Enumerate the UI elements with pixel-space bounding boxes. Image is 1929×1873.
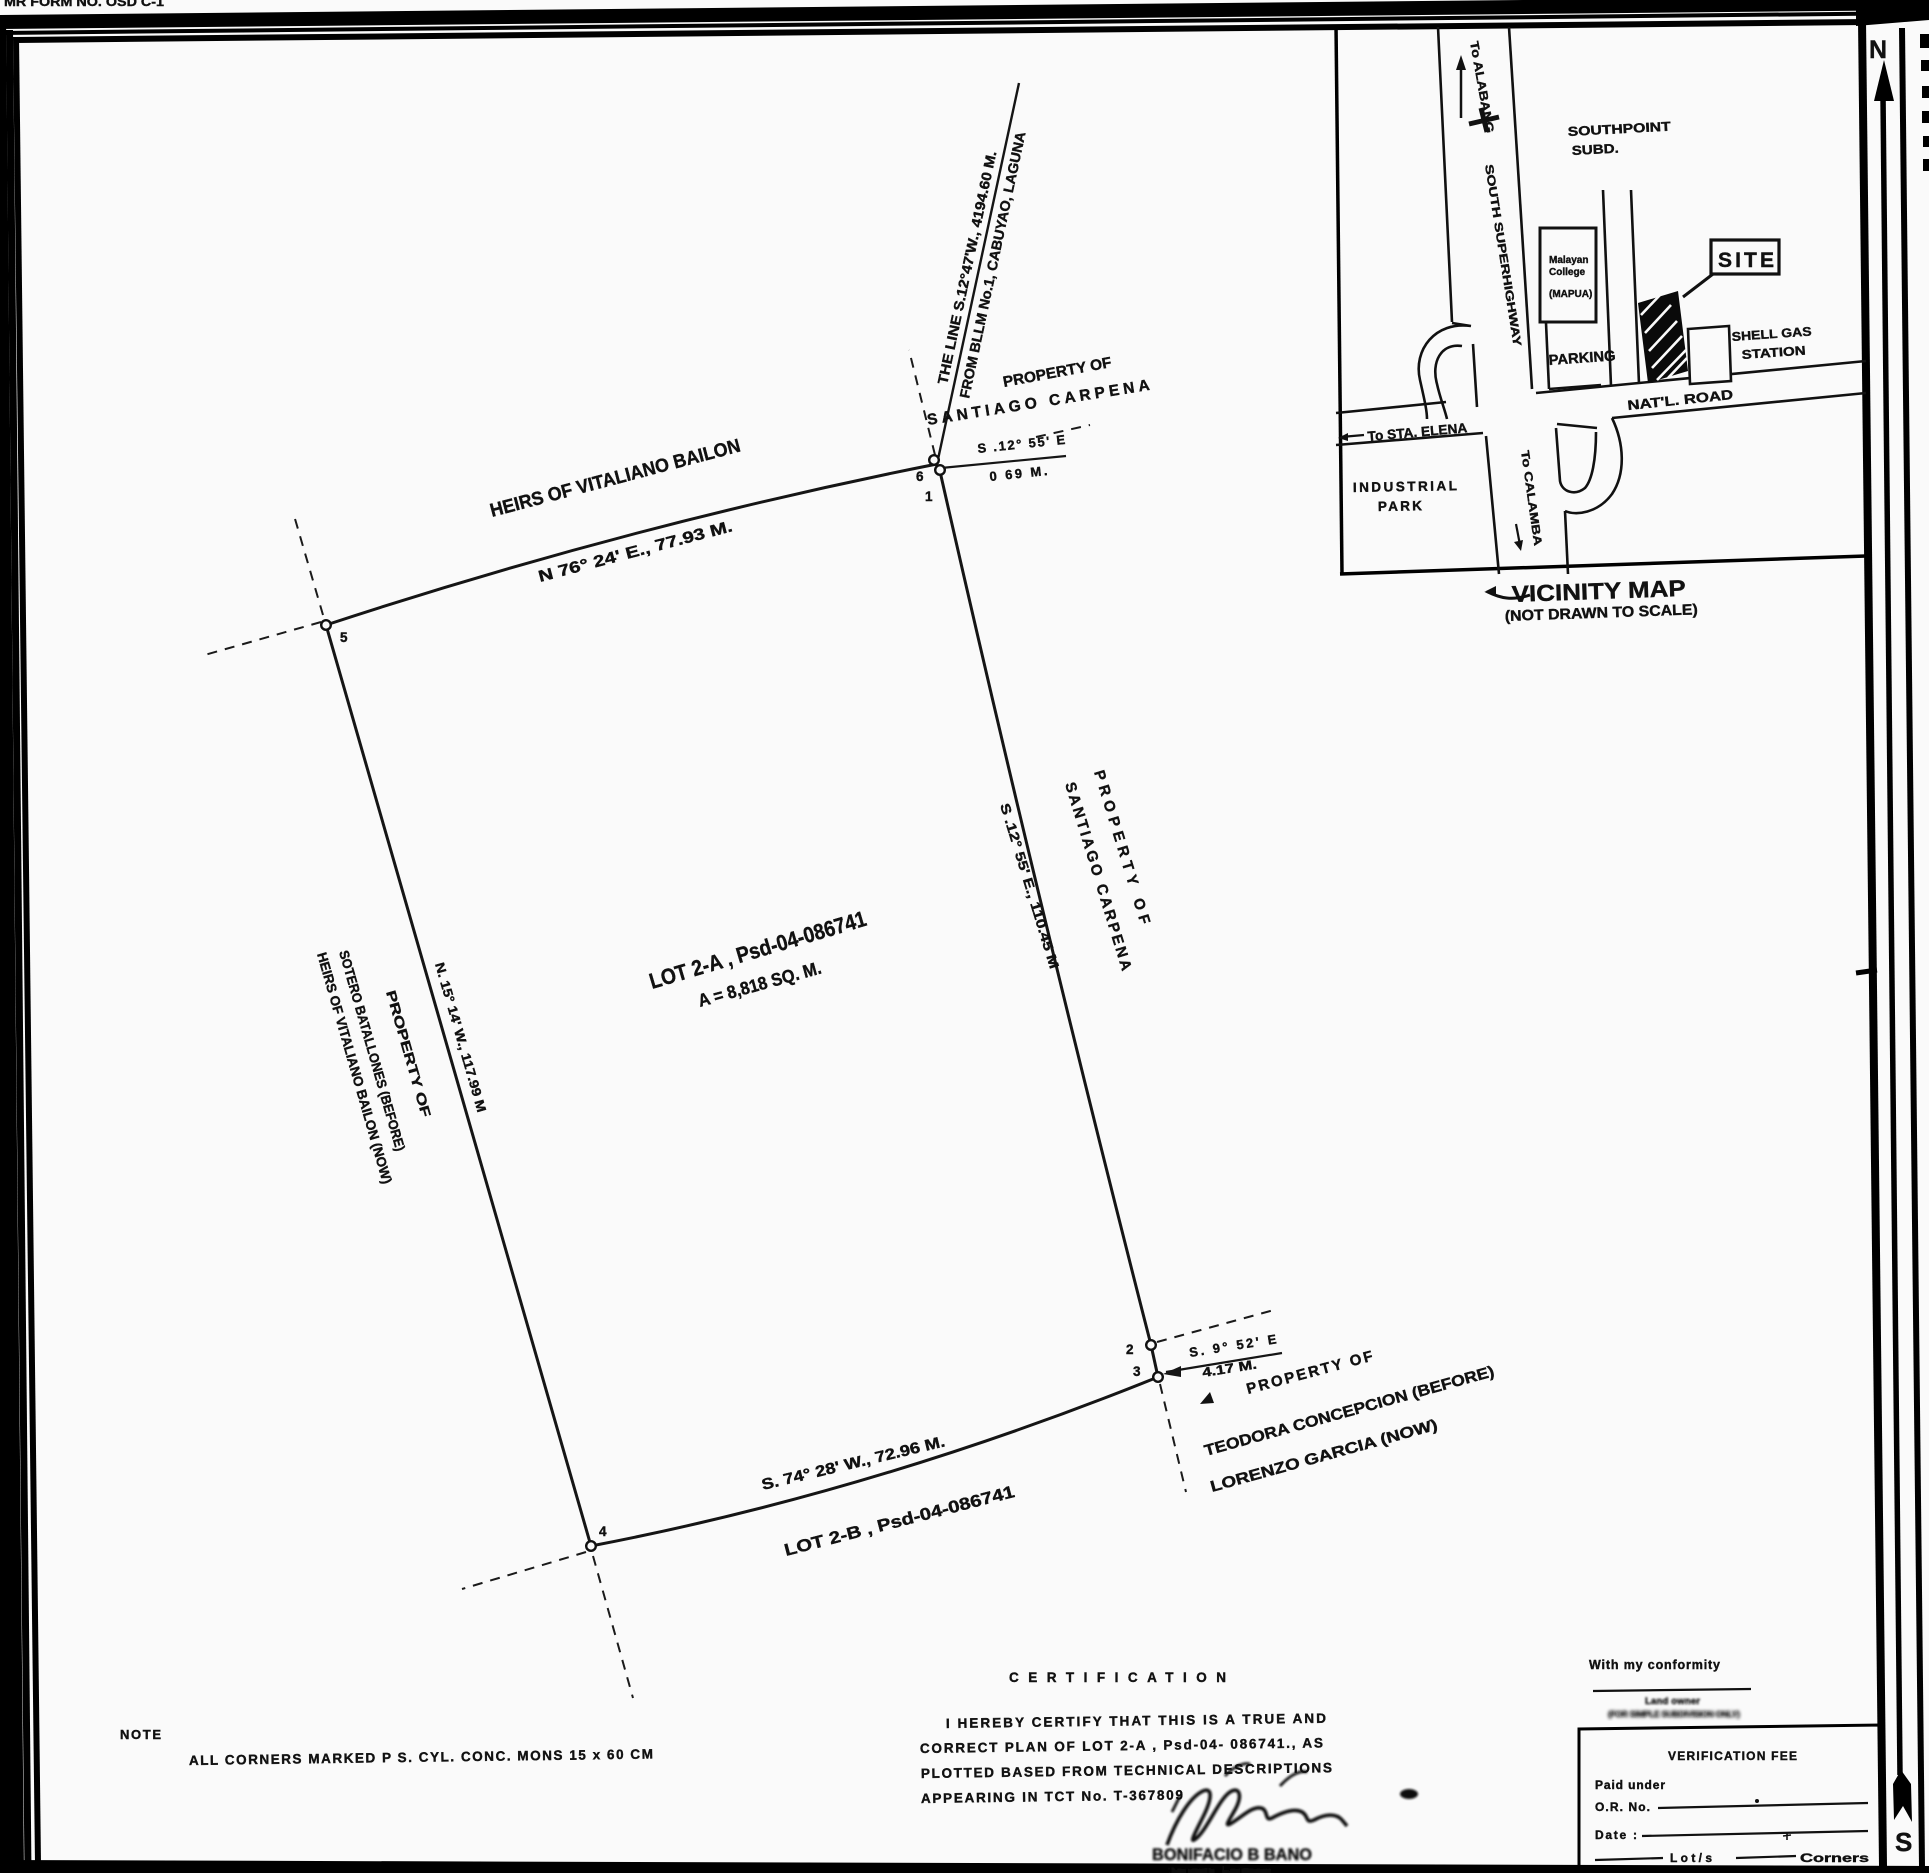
svg-text:MR FORM NO. OSD C-1: MR FORM NO. OSD C-1 — [4, 0, 164, 9]
svg-text:0 69 M.: 0 69 M. — [989, 463, 1048, 484]
svg-text:Date :: Date : — [1595, 1828, 1637, 1842]
svg-text:3: 3 — [1133, 1364, 1141, 1379]
svg-text:S .12° 55' E: S .12° 55' E — [977, 432, 1066, 456]
svg-text:6: 6 — [916, 469, 924, 484]
svg-text:HEIRS OF VITALIANO BAILON: HEIRS OF VITALIANO BAILON — [488, 436, 743, 522]
svg-text:4.17 M.: 4.17 M. — [1201, 1357, 1258, 1380]
svg-text:BONIFACIO B BANO: BONIFACIO B BANO — [1152, 1846, 1312, 1864]
svg-text:NOTE: NOTE — [120, 1727, 161, 1742]
svg-text:5: 5 — [340, 630, 348, 645]
svg-text:VERIFICATION FEE: VERIFICATION FEE — [1668, 1749, 1797, 1763]
svg-text:4: 4 — [599, 1524, 607, 1539]
svg-text:1: 1 — [925, 489, 933, 504]
svg-text:Geodetic Engineer: Geodetic Engineer — [1167, 1864, 1273, 1873]
svg-text:(MAPUA): (MAPUA) — [1549, 289, 1592, 300]
svg-text:PARK: PARK — [1378, 498, 1423, 514]
svg-text:Lot/s: Lot/s — [1670, 1851, 1712, 1865]
svg-text:SOUTH SUPERHIGHWAY: SOUTH SUPERHIGHWAY — [1482, 164, 1523, 348]
svg-text:2: 2 — [1126, 1342, 1134, 1357]
svg-text:PLOTTED BASED FROM TECHNICAL D: PLOTTED BASED FROM TECHNICAL DESCRIPTION… — [921, 1760, 1332, 1781]
svg-text:SOUTHPOINT: SOUTHPOINT — [1567, 119, 1671, 139]
svg-text:SITE: SITE — [1718, 249, 1774, 272]
svg-text:O.R. No.: O.R. No. — [1595, 1800, 1650, 1814]
svg-text:(FOR SIMPLE SUBDIVISION ONLY): (FOR SIMPLE SUBDIVISION ONLY) — [1608, 1709, 1740, 1719]
svg-text:Malayan: Malayan — [1549, 255, 1588, 266]
svg-text:College: College — [1549, 267, 1586, 278]
svg-text:To CALAMBA: To CALAMBA — [1518, 450, 1543, 547]
svg-text:S .12° 55' E., 110.45 M: S .12° 55' E., 110.45 M — [997, 801, 1062, 970]
svg-text:NAT'L. ROAD: NAT'L. ROAD — [1627, 387, 1734, 413]
svg-text:PARKING: PARKING — [1548, 348, 1616, 369]
svg-text:With my conformity: With my conformity — [1589, 1658, 1720, 1672]
svg-text:S: S — [1895, 1827, 1912, 1857]
svg-text:N: N — [1869, 36, 1887, 64]
svg-text:APPEARING IN TCT No. T-367809: APPEARING IN TCT No. T-367809 — [921, 1787, 1183, 1806]
svg-text:To STA. ELENA: To STA. ELENA — [1367, 420, 1468, 444]
svg-text:I HEREBY CERTIFY THAT THIS IS: I HEREBY CERTIFY THAT THIS IS A TRUE AND — [946, 1711, 1326, 1731]
svg-text:CERTIFICATION: CERTIFICATION — [1009, 1670, 1226, 1685]
svg-text:SHELL GAS: SHELL GAS — [1731, 324, 1812, 344]
svg-text:Land owner: Land owner — [1645, 1696, 1700, 1707]
svg-text:Paid under: Paid under — [1595, 1778, 1665, 1792]
svg-text:INDUSTRIAL: INDUSTRIAL — [1353, 478, 1457, 495]
svg-text:LORENZO GARCIA (NOW): LORENZO GARCIA (NOW) — [1209, 1417, 1440, 1496]
svg-text:CORRECT PLAN OF LOT 2-A , Psd-: CORRECT PLAN OF LOT 2-A , Psd-04- 086741… — [920, 1735, 1323, 1756]
svg-text:To ALABANG: To ALABANG — [1467, 40, 1497, 134]
svg-text:STATION: STATION — [1741, 344, 1806, 362]
svg-text:ALL CORNERS MARKED P S. CYL. C: ALL CORNERS MARKED P S. CYL. CONC. MONS … — [189, 1747, 653, 1768]
svg-text:Corners: Corners — [1800, 1851, 1869, 1865]
svg-text:SUBD.: SUBD. — [1571, 141, 1619, 158]
